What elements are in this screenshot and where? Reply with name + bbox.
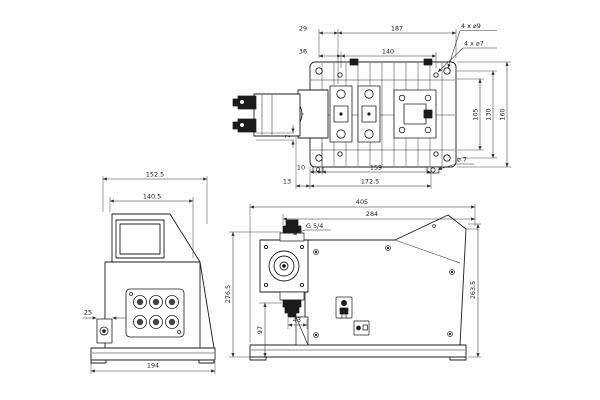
dim-side-263-5: 263.5 <box>469 281 477 299</box>
dim-side-276-5: 276.5 <box>224 285 232 303</box>
dosing-head-side <box>260 240 308 292</box>
dim-front-25: 25 <box>84 309 92 317</box>
dim-top-36: 36 <box>299 48 307 56</box>
dim-side-284: 284 <box>366 210 378 218</box>
dim-front-140-5: 140.5 <box>143 193 161 201</box>
dim-top-105: 105 <box>472 108 480 120</box>
dim-top-29: 29 <box>299 25 307 33</box>
callout-thread-g54: G 5/4 <box>306 222 323 230</box>
callout-holes-9: 4 x ⌀9 <box>461 22 481 30</box>
pump-body-side <box>305 215 466 345</box>
top-view <box>233 59 456 173</box>
dim-top-140: 140 <box>382 48 394 56</box>
drawing-sheet: 29 187 36 140 4 x ⌀9 4 x ⌀7 105 130 160 … <box>0 0 600 400</box>
leader-holes-9-arrow <box>448 31 460 69</box>
mounting-foot <box>97 319 112 343</box>
dim-top-10: 10 <box>297 164 305 172</box>
dim-front-194: 194 <box>147 362 159 370</box>
dim-side-405: 405 <box>356 198 368 206</box>
dim-top-160: 160 <box>499 108 507 120</box>
dim-side-97: 97 <box>256 326 264 334</box>
dim-top-13: 13 <box>283 178 291 186</box>
dim-top-172-5: 172.5 <box>361 178 379 186</box>
front-view <box>91 214 215 363</box>
base-side <box>250 345 466 360</box>
power-plug-icon <box>336 297 352 318</box>
dim-top-7: 7 <box>284 134 292 138</box>
callout-holes-7: 4 x ⌀7 <box>464 40 484 48</box>
valve-fittings-top <box>233 96 256 132</box>
dim-top-187: 187 <box>391 25 403 33</box>
discharge-valve-fitting <box>280 220 304 241</box>
connector-panel <box>126 289 184 337</box>
side-view <box>250 215 466 360</box>
dim-front-152-5: 152.5 <box>146 171 164 179</box>
technical-drawing: 29 187 36 140 4 x ⌀9 4 x ⌀7 105 130 160 … <box>0 0 600 400</box>
suction-valve-fitting <box>280 292 304 317</box>
callout-dia-7: ⌀ 7 <box>457 156 467 164</box>
dim-side-43: 43 <box>293 316 301 324</box>
dim-top-159: 159 <box>370 164 382 172</box>
side-cover-edge <box>200 262 214 348</box>
label-plate <box>354 321 369 335</box>
dim-top-130: 130 <box>485 108 493 120</box>
display-screen <box>120 224 160 254</box>
